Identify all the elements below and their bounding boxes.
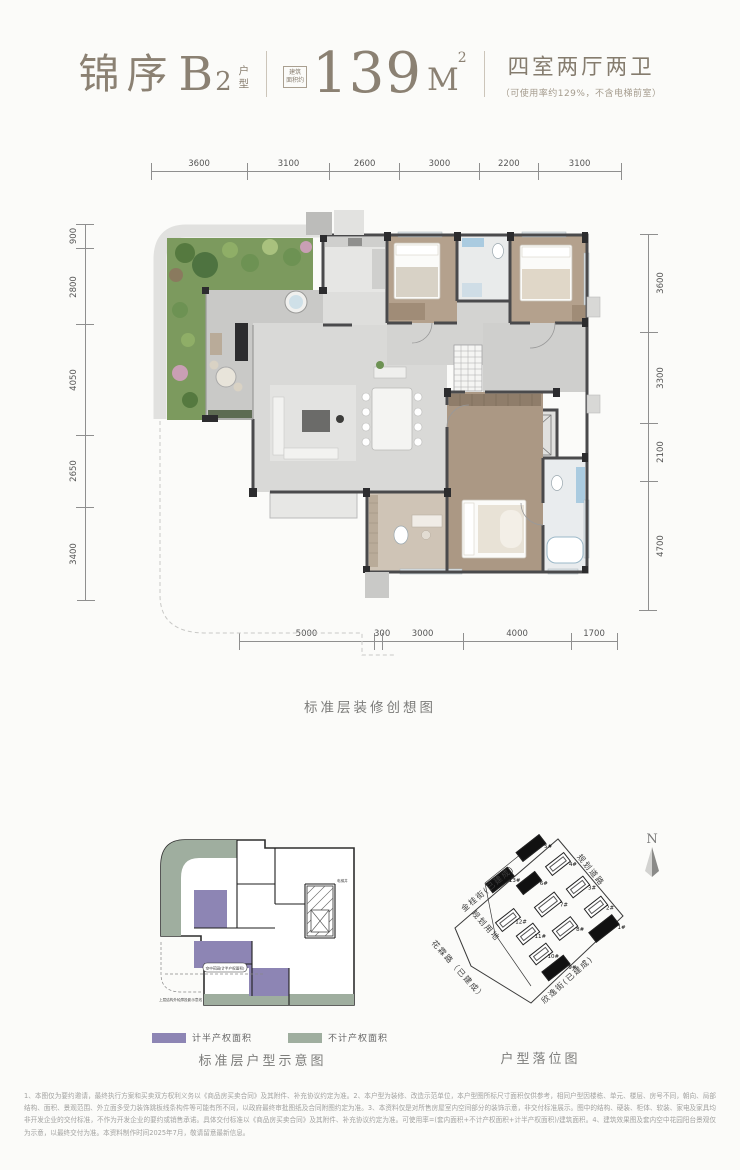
dimension-segment: 3100 xyxy=(538,158,621,172)
main-floorplan xyxy=(110,205,626,665)
master-bedroom xyxy=(447,392,543,572)
legend-swatch-green xyxy=(288,1033,322,1043)
legend: 计半产权面积 不计产权面积 xyxy=(152,1031,388,1044)
site-map-caption: 户型落位图 xyxy=(433,1048,648,1067)
dimension-value: 4050 xyxy=(69,369,79,391)
kitchen xyxy=(323,235,387,292)
dimension-value: 2600 xyxy=(330,159,399,169)
building-label: 11# xyxy=(535,934,547,940)
legend-swatch-purple xyxy=(152,1033,186,1043)
dimension-value: 2800 xyxy=(69,276,79,298)
dimension-segment: 4700 xyxy=(648,481,672,610)
area-box-label: 建筑 面积约 xyxy=(283,66,307,88)
study-room xyxy=(367,492,447,572)
building-label: 3# xyxy=(588,886,596,892)
building-label: 8# xyxy=(576,927,584,933)
legend-item-half-counted: 计半产权面积 xyxy=(152,1031,252,1044)
dimension-value: 3100 xyxy=(247,159,330,169)
dimension-value: 900 xyxy=(69,228,79,244)
hallway xyxy=(457,301,510,323)
title-suffix: 户 型 xyxy=(239,65,251,90)
standard-floor-schematic: 空中花园(计半产权面积) 上层结构外轮廓投影示意线 电梯井 xyxy=(145,824,380,1024)
site-map: 5#4#13#6#3#7#2#12#8#1#11#10#9# 金桂街(已建成)规… xyxy=(433,826,693,1026)
header-divider xyxy=(484,51,485,97)
building-label: 12# xyxy=(516,919,528,925)
cabinet-grid xyxy=(454,345,482,391)
dimension-value: 2200 xyxy=(479,159,538,169)
title-main: 锦序 xyxy=(79,54,175,95)
dimension-value: 2650 xyxy=(69,460,79,482)
master-bathroom xyxy=(543,458,587,572)
building-label: 1# xyxy=(617,925,625,931)
dimension-segment: 900 xyxy=(62,224,86,249)
dimension-segment: 3400 xyxy=(62,507,86,600)
schematic-annotation-projection: 上层结构外轮廓投影示意线 xyxy=(159,997,203,1002)
dimensions-left: 9002800405026503400 xyxy=(62,224,86,600)
dimension-value: 2100 xyxy=(656,441,666,463)
dimension-segment: 2800 xyxy=(62,249,86,325)
bedroom-top-middle xyxy=(387,235,457,323)
building-label: 7# xyxy=(560,902,568,908)
dimension-segment: 2600 xyxy=(330,158,399,172)
schematic-caption: 标准层户型示意图 xyxy=(145,1050,380,1069)
dimension-segment: 3000 xyxy=(399,158,479,172)
dimensions-right: 3600330021004700 xyxy=(648,234,672,610)
area-value: 139 xyxy=(312,52,422,97)
schematic-annotation-garden: 空中花园(计半产权面积) xyxy=(203,963,247,972)
dimension-segment: 2200 xyxy=(479,158,538,172)
area-superscript: 2 xyxy=(458,50,467,66)
bedroom-top-right xyxy=(510,235,587,323)
header-divider xyxy=(266,51,267,97)
compass-needle-icon xyxy=(641,847,663,883)
dimension-segment: 2100 xyxy=(648,423,672,481)
dimension-value: 4700 xyxy=(656,535,666,557)
rooms-group: 四室两厅两卫 （可使用率约129%，不含电梯前室） xyxy=(501,50,662,99)
dimension-value: 3100 xyxy=(538,159,621,169)
dimension-segment: 3600 xyxy=(648,234,672,333)
dimensions-top: 360031002600300022003100 xyxy=(151,158,621,172)
schematic-annotation-core: 电梯井 xyxy=(337,878,348,883)
rooms-label: 四室两厅两卫 xyxy=(508,50,655,81)
building-label: 6# xyxy=(540,881,548,887)
title-letter: B xyxy=(179,55,214,95)
dimension-value: 3300 xyxy=(656,367,666,389)
main-plan-caption: 标准层装修创想图 xyxy=(0,696,740,716)
dimension-segment: 3600 xyxy=(151,158,247,172)
dimension-segment: 4050 xyxy=(62,325,86,435)
dimension-value: 3400 xyxy=(69,543,79,565)
dimension-value: 3600 xyxy=(151,159,247,169)
title-number: 2 xyxy=(215,69,232,95)
dimension-value: 3000 xyxy=(399,159,479,169)
bathroom-top xyxy=(457,235,510,301)
svg-text:空中花园(计半产权面积): 空中花园(计半产权面积) xyxy=(206,966,245,971)
area-unit: M2 xyxy=(427,65,468,96)
dimension-value: 3600 xyxy=(656,273,666,295)
area-group: 建筑 面积约 139 M2 xyxy=(283,52,468,97)
rooms-note: （可使用率约129%，不含电梯前室） xyxy=(501,86,662,99)
compass: N xyxy=(641,832,663,887)
building-label: 4# xyxy=(569,862,577,868)
building-label: 5# xyxy=(544,844,552,850)
building-label: 2# xyxy=(606,906,614,912)
dimension-segment: 2650 xyxy=(62,435,86,507)
unit-title: 锦序 B 2 户 型 xyxy=(79,54,251,95)
dimension-segment: 3300 xyxy=(648,333,672,424)
header: 锦序 B 2 户 型 建筑 面积约 139 M2 四室两厅两卫 （可使用率约12… xyxy=(0,36,740,112)
disclaimer-text: 1、本图仅为要约邀请，最终执行方案和买卖双方权利义务以《商品房买卖合同》及其附件… xyxy=(24,1090,716,1139)
floorplan-poster: 锦序 B 2 户 型 建筑 面积约 139 M2 四室两厅两卫 （可使用率约12… xyxy=(0,0,740,1170)
legend-item-not-counted: 不计产权面积 xyxy=(288,1031,388,1044)
dimension-segment: 3100 xyxy=(247,158,330,172)
compass-n-label: N xyxy=(641,832,663,847)
